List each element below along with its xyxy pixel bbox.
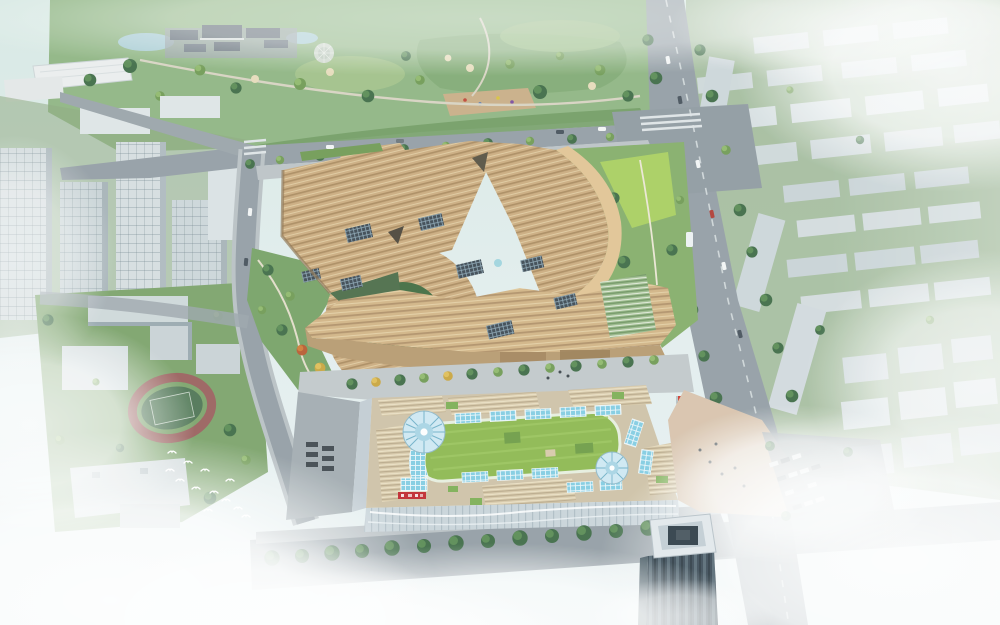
rendering-canvas	[0, 0, 1000, 625]
aerial-rendering	[0, 0, 1000, 625]
fog-clouds	[0, 0, 1000, 625]
global-haze	[0, 0, 1000, 625]
